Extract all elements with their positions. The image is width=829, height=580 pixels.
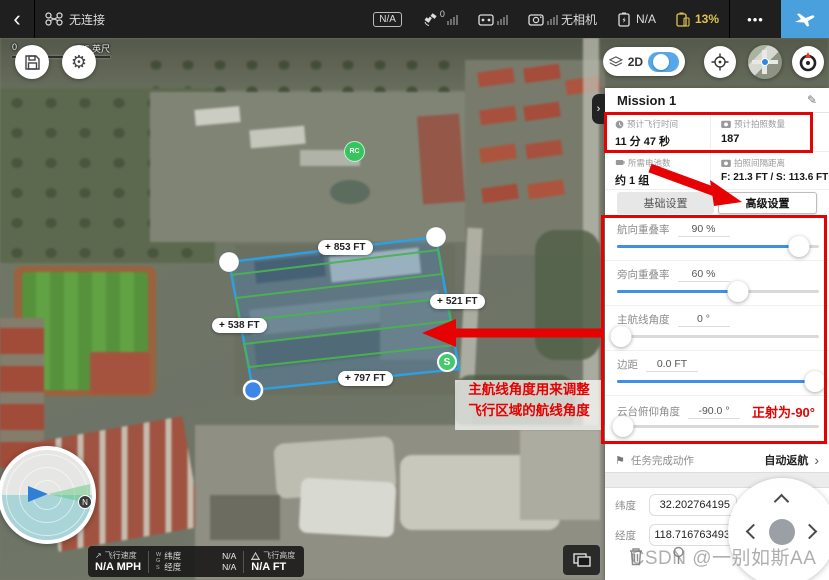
edge-length-bottom: +797 FT (338, 371, 393, 386)
value-field[interactable]: 0.0 FT (646, 358, 698, 372)
pin-icon[interactable] (672, 546, 685, 565)
map-2d-toggle[interactable]: 2D (603, 47, 685, 76)
drone-icon (45, 12, 63, 26)
satellite-count: 0 (440, 9, 445, 19)
slider-track[interactable] (617, 380, 819, 383)
save-icon (24, 54, 41, 71)
dpad-left-arrow[interactable] (746, 524, 762, 540)
settings-button[interactable]: ⚙ (62, 45, 96, 79)
plus-icon: + (219, 320, 225, 331)
minimap-button[interactable] (748, 45, 782, 79)
slider-side-overlap: 旁向重叠率60 % (605, 261, 829, 306)
plus-icon: + (345, 373, 351, 384)
slider-track[interactable] (617, 290, 819, 293)
rc-battery-icon (617, 12, 631, 27)
panel-header: Mission 1 ✎ (605, 88, 829, 113)
delete-mission-button[interactable] (628, 547, 644, 566)
speed-section: ↗飞行速度 N/A MPH (88, 546, 148, 577)
toggle-switch[interactable] (648, 52, 679, 72)
gimbal-annotation: 正射为-90° (752, 402, 815, 421)
tutorial-note: 主航线角度用来调整 飞行区域的航线角度 (455, 380, 603, 430)
compass-north-badge: N (78, 495, 92, 509)
compass-icon (797, 51, 819, 73)
toggle-2d-label: 2D (628, 55, 643, 69)
dpad-center[interactable] (769, 519, 795, 545)
save-mission-button[interactable] (15, 45, 49, 79)
locate-button[interactable] (704, 46, 736, 78)
slider-handle[interactable] (613, 416, 634, 437)
layers-stack-icon (572, 552, 592, 568)
status-bar: ‹ 无连接 N/A 0 无相机 N/A (0, 0, 829, 38)
plus-icon: + (325, 242, 331, 253)
value-field[interactable]: -90.0 ° (688, 405, 740, 419)
vertex-handle-topleft (219, 252, 239, 272)
camera-signal-bars (547, 14, 558, 25)
map-layers-button[interactable] (563, 545, 600, 575)
remote-controller-icon (478, 13, 494, 26)
edge-length-top: +853 FT (318, 240, 373, 255)
panel-collapse-handle[interactable]: › (592, 94, 605, 124)
aircraft-arrow (28, 486, 48, 502)
mission-stats: 预计飞行时间 11 分 47 秒 预计拍照数量 187 所需电池数 约 1 组 … (605, 113, 829, 190)
altitude-icon (251, 552, 260, 560)
minimap-position-dot (761, 58, 769, 66)
altitude-section: 飞行高度 N/A FT (244, 546, 302, 577)
tab-advanced-settings[interactable]: 高级设置 (718, 192, 817, 214)
flight-mode-badge: N/A (373, 12, 402, 27)
stat-battery-count: 所需电池数 约 1 组 (605, 152, 711, 191)
slider-track[interactable] (617, 425, 819, 428)
slider-handle[interactable] (611, 326, 632, 347)
aircraft-battery-icon (676, 12, 690, 27)
gear-icon: ⚙ (71, 52, 87, 73)
stat-photo-count: 预计拍照数量 187 (711, 113, 829, 152)
advanced-settings-sliders: 航向重叠率90 % 旁向重叠率60 % 主航线角度0 ° 边距0.0 FT 云台… (605, 216, 829, 444)
finish-action-row[interactable]: ⚑ 任务完成动作 自动返航 › (605, 448, 829, 472)
value-field[interactable]: 0 ° (678, 313, 730, 327)
start-point-marker[interactable]: S (437, 352, 457, 372)
connection-status: 无连接 (69, 11, 105, 28)
stat-photo-interval: 拍照间隔距离 F: 21.3 FT / S: 113.6 FT (711, 152, 829, 191)
compass-reset-button[interactable] (792, 46, 824, 78)
vertex-handle-topright (426, 227, 446, 247)
slider-margin: 边距0.0 FT (605, 351, 829, 396)
dpad-right-arrow[interactable] (802, 524, 818, 540)
edge-length-left: +538 FT (212, 318, 267, 333)
slider-handle[interactable] (804, 371, 825, 392)
slider-handle[interactable] (788, 236, 809, 257)
longitude-input[interactable]: 118.716763493 (649, 524, 737, 546)
gps-section: WGS 纬度N/A 经度N/A (149, 546, 243, 577)
clock-icon (615, 120, 624, 129)
rc-signal-bars (497, 14, 508, 25)
edge-length-right: +521 FT (430, 294, 485, 309)
back-button[interactable]: ‹ (0, 0, 34, 38)
value-field[interactable]: 90 % (678, 223, 730, 237)
telemetry-bar: ↗飞行速度 N/A MPH WGS 纬度N/A 经度N/A 飞行高度 N/A F… (88, 546, 304, 577)
edit-mission-icon[interactable]: ✎ (807, 93, 817, 107)
takeoff-button[interactable] (781, 0, 829, 38)
slider-track[interactable] (617, 245, 819, 248)
slider-course-overlap: 航向重叠率90 % (605, 216, 829, 261)
camera-status: 无相机 (561, 11, 597, 28)
airplane-icon (794, 10, 816, 28)
aircraft-battery-percent: 13% (695, 12, 719, 26)
dpad-up-arrow[interactable] (774, 494, 790, 510)
slider-gimbal-pitch: 云台俯仰角度-90.0 °正射为-90° (605, 396, 829, 444)
slider-course-angle: 主航线角度0 ° (605, 306, 829, 351)
crosshair-icon (711, 53, 729, 71)
rc-battery-value: N/A (636, 12, 656, 26)
stat-flight-time: 预计飞行时间 11 分 47 秒 (605, 113, 711, 152)
plus-icon: + (437, 296, 443, 307)
settings-tabs: 基础设置 高级设置 (605, 190, 829, 216)
camera-icon (721, 120, 731, 128)
rc-location-marker: RC (344, 141, 365, 162)
satellite-icon (422, 12, 438, 26)
slider-track[interactable] (617, 335, 819, 338)
value-field[interactable]: 60 % (678, 268, 730, 282)
battery-icon (615, 158, 625, 167)
latitude-input[interactable]: 32.202764195 (649, 494, 737, 516)
satellite-signal-bars (447, 14, 458, 25)
mission-title: Mission 1 (617, 93, 676, 108)
more-menu-button[interactable]: ••• (729, 0, 781, 38)
tab-basic-settings[interactable]: 基础设置 (617, 192, 714, 214)
position-dpad[interactable] (728, 478, 829, 580)
vertex-handle-bottomleft (244, 381, 262, 399)
chevron-right-icon: › (814, 452, 819, 468)
speed-arrow-icon: ↗ (95, 551, 102, 560)
wgs-label: WGS (156, 552, 161, 570)
camera-icon (721, 159, 731, 167)
slider-handle[interactable] (728, 281, 749, 302)
layers-icon (609, 55, 623, 69)
flag-icon: ⚑ (615, 454, 625, 467)
camera-icon (528, 13, 544, 26)
